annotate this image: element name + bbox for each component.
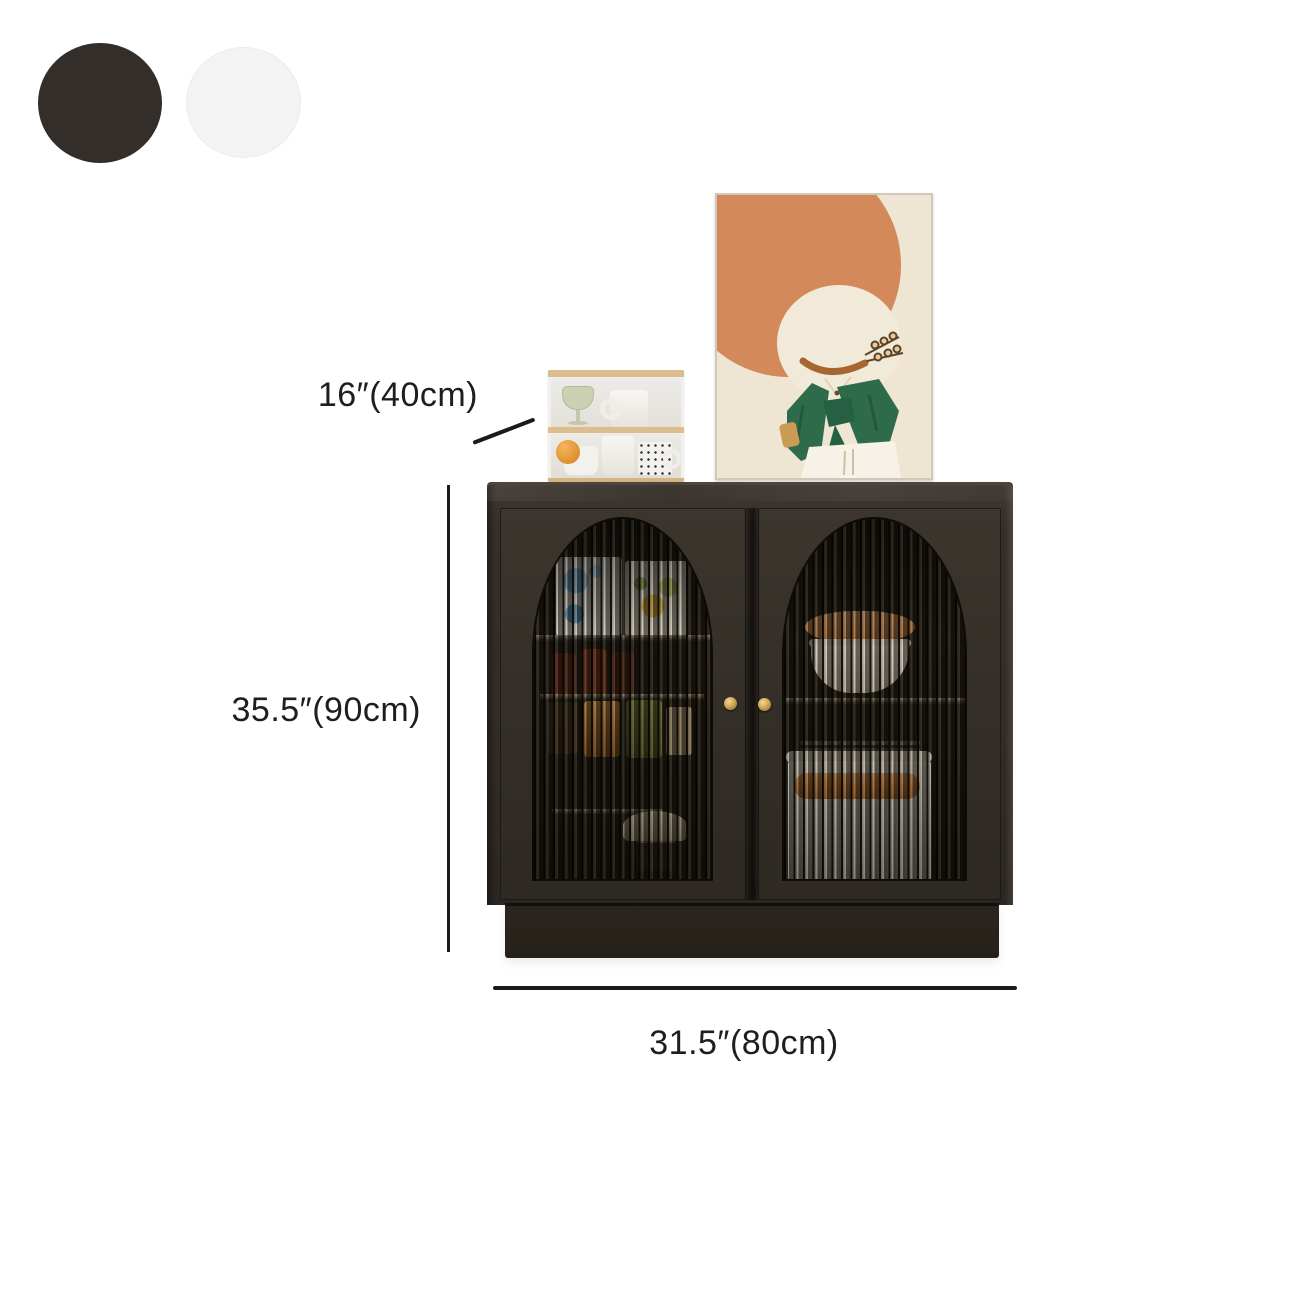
height-dimension-label: 35.5″(90cm) — [190, 691, 421, 730]
glass-goblet-stem — [576, 410, 580, 421]
glass-goblet-foot — [568, 421, 588, 425]
artwork-print — [715, 193, 933, 480]
width-dimension-label: 31.5″(80cm) — [594, 1024, 894, 1063]
cabinet-top-surface — [487, 485, 1013, 501]
color-swatch-black[interactable] — [38, 43, 162, 163]
cabinet-base-plinth — [505, 903, 999, 958]
depth-leader-line — [472, 417, 535, 444]
patterned-mug — [638, 442, 672, 475]
product-dimension-image: 16″(40cm) 35.5″(90cm) 31.5″(80cm) — [0, 0, 1300, 1300]
cabinet — [487, 482, 1013, 905]
height-dimension-line — [447, 485, 450, 952]
white-cup — [602, 436, 634, 475]
door-knob-left — [724, 697, 737, 710]
glass-flutes — [784, 519, 965, 879]
door-knob-right — [758, 698, 771, 711]
color-swatch-white[interactable] — [186, 47, 301, 158]
glass-flutes — [534, 519, 711, 879]
white-mug — [610, 390, 648, 427]
shelf-wood-trim — [548, 370, 684, 377]
width-dimension-line — [493, 986, 1017, 990]
fluted-glass-arch-left — [532, 517, 713, 881]
artwork-illustration — [717, 195, 931, 478]
display-shelf — [548, 370, 684, 482]
fluted-glass-arch-right — [782, 517, 967, 881]
depth-dimension-label: 16″(40cm) — [250, 376, 478, 415]
orange-fruit — [556, 440, 580, 464]
